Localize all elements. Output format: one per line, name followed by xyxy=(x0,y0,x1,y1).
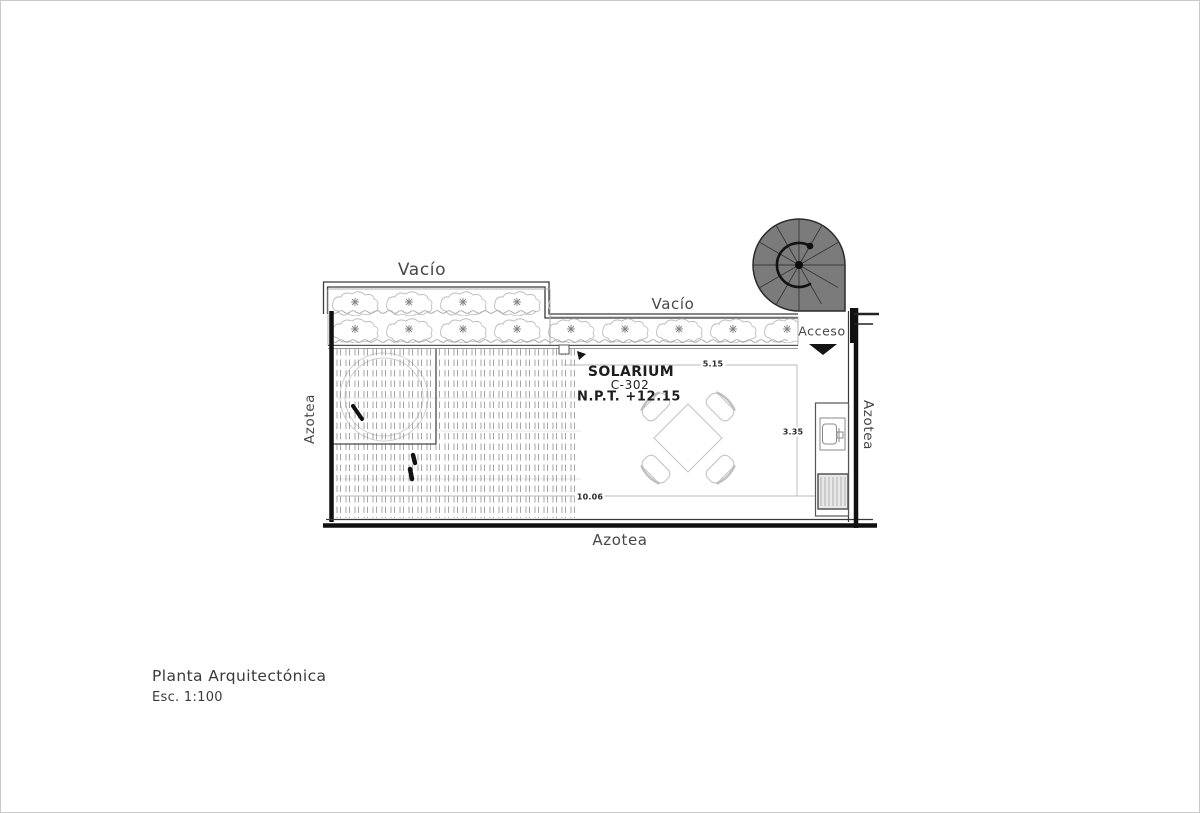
stair-center-post xyxy=(795,261,803,269)
label-azotea-right: Azotea xyxy=(860,400,876,450)
label-vacio-top: Vacío xyxy=(398,260,446,280)
planter-strips xyxy=(328,289,798,349)
drain-arrow-mark xyxy=(577,351,586,360)
overhead-circle xyxy=(340,353,428,441)
dimension-right: 3.35 xyxy=(781,428,806,437)
table xyxy=(654,404,722,472)
deck-dashed-hatch xyxy=(337,349,575,518)
planter-notch xyxy=(559,345,569,354)
label-azotea-bottom: Azotea xyxy=(592,531,647,549)
chair xyxy=(704,453,738,487)
drawing-scale: Esc. 1:100 xyxy=(152,690,326,705)
floor-plan-page: Vacío Vacío Acceso Azotea Azotea Azotea … xyxy=(0,0,1200,813)
chair xyxy=(704,389,738,423)
appliance xyxy=(818,474,848,509)
drawing-title: Planta Arquitectónica xyxy=(152,667,326,685)
level-marks xyxy=(353,406,415,479)
counter-unit xyxy=(816,403,849,516)
dimension-lines xyxy=(337,365,849,496)
chair xyxy=(638,453,672,487)
title-block: Planta Arquitectónica Esc. 1:100 xyxy=(152,667,326,705)
spiral-staircase xyxy=(753,219,845,311)
access-arrow-icon xyxy=(809,344,837,355)
label-acceso: Acceso xyxy=(798,324,846,339)
room-level-label: N.P.T. +12.15 xyxy=(577,390,681,405)
dimension-bottom: 10.06 xyxy=(575,493,605,502)
construction-grid-lines xyxy=(337,398,581,479)
deck-division-lines xyxy=(331,349,436,444)
label-vacio-right: Vacío xyxy=(652,295,695,313)
label-azotea-left: Azotea xyxy=(302,394,318,444)
dimension-top: 5.15 xyxy=(701,360,726,369)
